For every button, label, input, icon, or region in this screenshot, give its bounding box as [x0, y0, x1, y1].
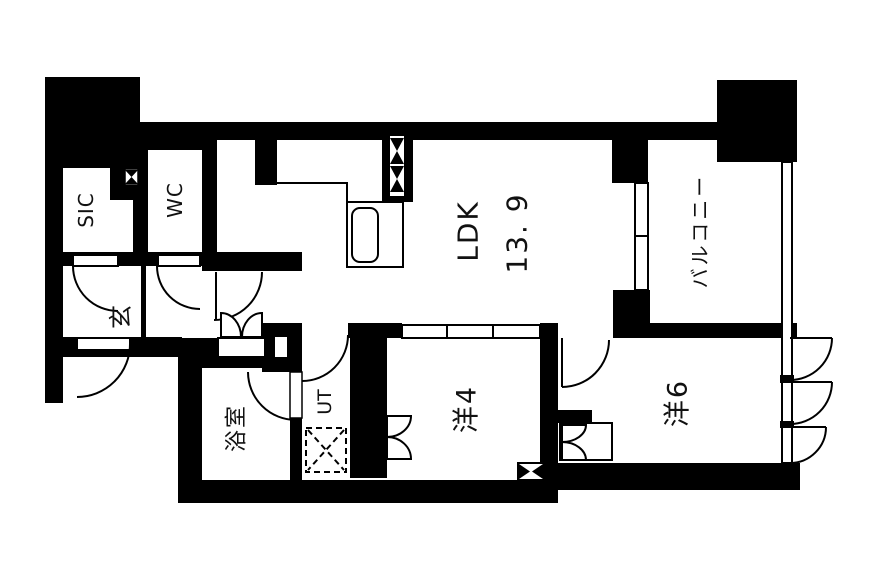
wall [178, 338, 202, 483]
yo4-sliding-window [402, 325, 540, 338]
wall [540, 463, 800, 490]
kitchen-edge-line [272, 183, 347, 202]
hall-closet [218, 338, 265, 357]
casement-window-leaf [790, 338, 832, 427]
room-label-bath: 浴室 [225, 404, 250, 452]
bath-door-leaf [290, 372, 302, 418]
room-label-utility: UT [314, 389, 336, 415]
wall [350, 338, 387, 478]
room-label-sic: SIC [74, 192, 98, 228]
kitchen-pillar [255, 140, 277, 185]
washer-cross [308, 430, 344, 470]
wall [63, 77, 140, 168]
casement-window-arc [790, 427, 826, 463]
sic-door-leaf [73, 255, 118, 266]
wall [202, 140, 217, 271]
room-label-western4: 洋4 [452, 385, 483, 433]
balcony-rail [782, 162, 792, 463]
bifold-leaf [242, 313, 262, 337]
room-label-ldk: LDK [452, 200, 485, 262]
casement-window-arc [790, 382, 832, 424]
wall [717, 80, 797, 162]
bifold-leaf [221, 313, 241, 337]
kitchen-sink [352, 208, 378, 262]
wall [613, 290, 650, 338]
room-label-western6: 洋6 [663, 379, 694, 427]
wall [558, 410, 592, 423]
wall [148, 140, 202, 150]
wall [540, 323, 558, 480]
wall [648, 323, 797, 338]
wall [141, 266, 146, 337]
wall [348, 323, 402, 338]
walls [45, 77, 800, 503]
room-label-wc: WC [163, 182, 187, 218]
washer-pan [306, 428, 346, 472]
wall [133, 140, 148, 252]
wall [612, 137, 648, 183]
wc-door-arc [157, 266, 200, 309]
wall [178, 480, 558, 503]
wall [202, 338, 218, 368]
bifold-leaf [387, 437, 411, 459]
casement-window-arc [790, 338, 832, 380]
floor-plan-drawing: SIC WC 玄 LDK 13. 9 バルコニー 浴室 UT 洋4 洋6 [0, 0, 882, 576]
sic-door-arc [73, 266, 118, 311]
bath-door-arc [248, 372, 296, 420]
pipe-space-slot [275, 337, 287, 357]
entrance-door-leaf [77, 338, 130, 350]
yo6-door-arc [562, 340, 609, 387]
room-label-ldk-area: 13. 9 [501, 192, 534, 273]
bifold-leaf [387, 416, 411, 437]
floor-plan: SIC WC 玄 LDK 13. 9 バルコニー 浴室 UT 洋4 洋6 [0, 0, 882, 576]
ut-door-arc [302, 335, 348, 381]
room-label-entrance: 玄 [107, 305, 135, 329]
wall [202, 252, 302, 271]
wc-door-leaf [158, 255, 200, 266]
room-label-balcony: バルコニー [688, 174, 712, 289]
